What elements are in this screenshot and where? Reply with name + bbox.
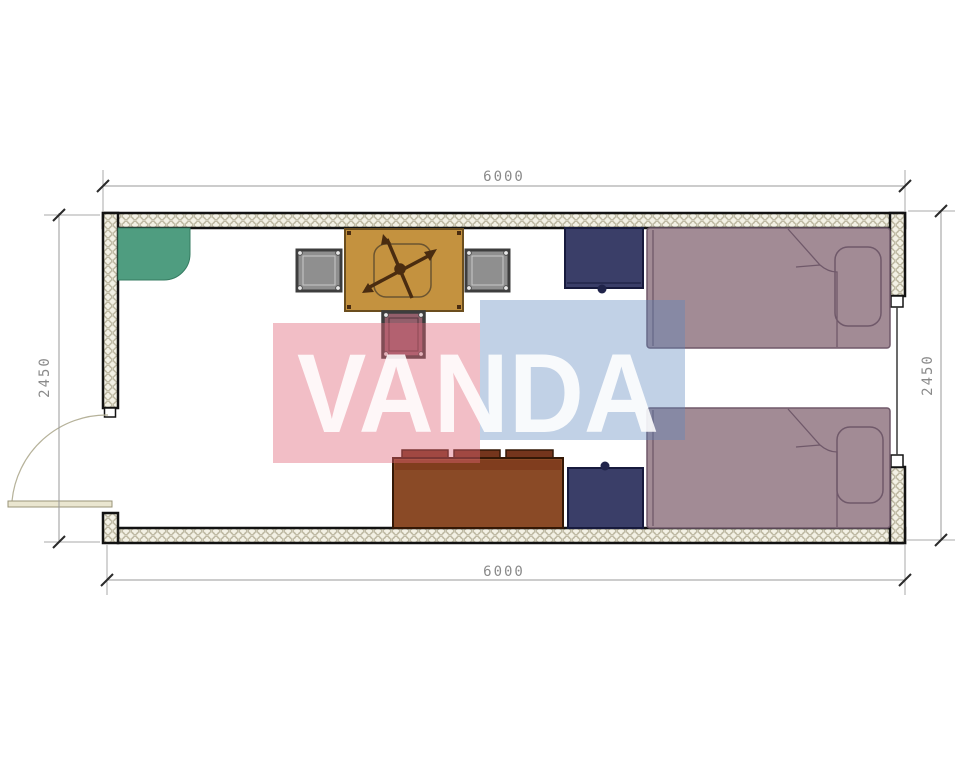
stool-right: [466, 250, 509, 291]
dimension-top-label: 6000: [483, 169, 525, 185]
cabinet-knob: [598, 285, 607, 294]
pillow: [837, 427, 883, 503]
door-leaf: [8, 501, 112, 507]
stool-left: [297, 250, 341, 291]
dimension-bottom: 6000: [101, 545, 911, 595]
pillow: [835, 247, 881, 326]
wall-right-top: [890, 213, 905, 296]
cabinet-top: [565, 228, 643, 294]
wall-left: [103, 213, 118, 408]
floor-plan-canvas: 6000 6000 2450 2450 VANDA: [0, 0, 960, 768]
watermark: VANDA: [273, 300, 685, 463]
watermark-text: VANDA: [297, 331, 659, 456]
wall-bottom-left-stub: [103, 513, 118, 543]
dimension-bottom-label: 6000: [483, 564, 525, 580]
wall-right-bottom: [890, 467, 905, 543]
dimension-top: 6000: [97, 169, 911, 211]
floor-plan-drawing: 6000 6000 2450 2450 VANDA: [0, 0, 960, 768]
door: [8, 415, 112, 507]
dimension-right: 2450: [906, 205, 955, 546]
dimension-right-label: 2450: [920, 354, 936, 396]
cabinet-bottom: [568, 462, 643, 529]
corner-shelf: [118, 228, 190, 280]
window-jamb-top: [891, 296, 903, 307]
window-jamb-bottom: [891, 455, 903, 467]
door-swing-arc: [12, 415, 108, 501]
wall-top: [103, 213, 905, 228]
wall-bottom: [118, 528, 905, 543]
table-with-fan: [345, 229, 463, 311]
door-jamb: [105, 408, 116, 417]
dimension-left: 2450: [37, 209, 100, 548]
cabinet-knob: [601, 462, 610, 471]
dimension-left-label: 2450: [37, 356, 53, 398]
